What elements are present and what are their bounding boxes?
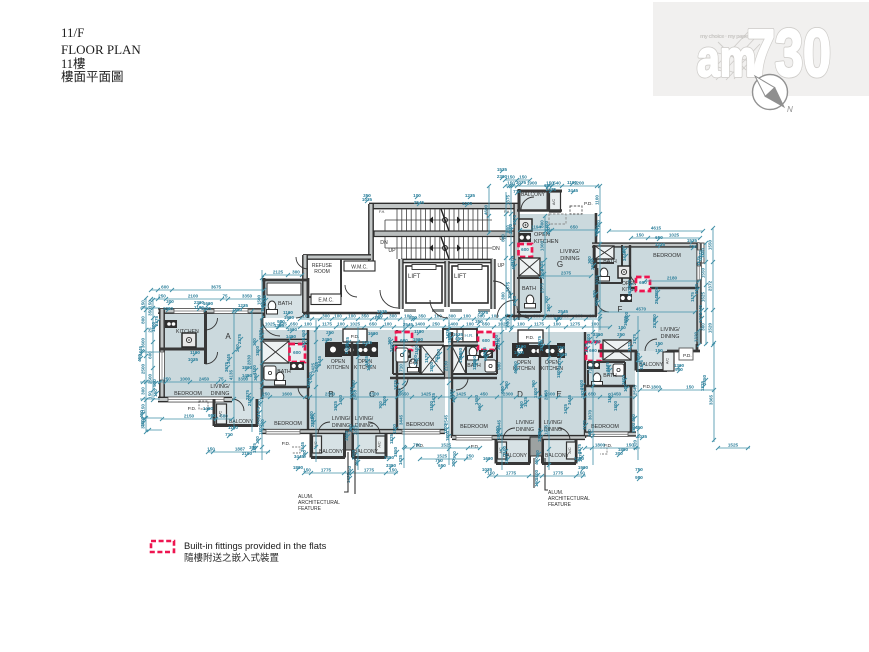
svg-text:4600: 4600: [483, 204, 488, 215]
svg-text:2450: 2450: [199, 376, 210, 381]
svg-text:A/C: A/C: [666, 358, 670, 365]
svg-text:3075: 3075: [594, 274, 599, 285]
svg-text:1175: 1175: [534, 321, 544, 326]
svg-text:100: 100: [302, 313, 310, 318]
svg-text:LIVING/: LIVING/: [516, 420, 535, 426]
svg-text:3365: 3365: [708, 394, 713, 405]
svg-text:600: 600: [161, 284, 169, 289]
svg-text:300: 300: [322, 313, 330, 318]
svg-text:BEDROOM: BEDROOM: [274, 421, 302, 427]
svg-text:2125: 2125: [273, 269, 284, 274]
svg-text:BATH: BATH: [522, 286, 536, 292]
svg-text:A/C: A/C: [552, 199, 556, 206]
svg-text:2300: 2300: [369, 391, 380, 396]
svg-text:150: 150: [686, 384, 694, 389]
svg-text:600: 600: [293, 350, 301, 355]
svg-text:300: 300: [389, 313, 397, 318]
svg-text:FEATURE: FEATURE: [298, 506, 322, 512]
svg-text:2375: 2375: [539, 282, 544, 293]
svg-text:KITCHEN: KITCHEN: [327, 365, 349, 371]
svg-text:1175: 1175: [322, 321, 332, 326]
svg-text:1600: 1600: [282, 391, 293, 396]
svg-text:N: N: [787, 105, 793, 114]
svg-text:LIFT: LIFT: [454, 274, 467, 280]
svg-text:100: 100: [334, 313, 342, 318]
svg-text:250: 250: [432, 321, 440, 326]
svg-text:1225: 1225: [352, 424, 357, 435]
svg-text:DINING: DINING: [661, 334, 680, 340]
svg-text:1000: 1000: [180, 376, 191, 381]
svg-text:980: 980: [496, 362, 501, 370]
svg-text:BATH: BATH: [278, 301, 292, 307]
svg-text:ROOM: ROOM: [314, 269, 330, 275]
svg-text:100: 100: [304, 321, 312, 326]
svg-text:1800: 1800: [595, 442, 606, 447]
svg-text:100: 100: [591, 321, 599, 326]
svg-text:1520: 1520: [707, 322, 712, 333]
svg-text:75: 75: [218, 376, 224, 381]
svg-text:1275: 1275: [570, 321, 581, 326]
svg-text:BEDROOM: BEDROOM: [406, 422, 434, 428]
svg-text:2100: 2100: [188, 293, 199, 298]
svg-text:450: 450: [480, 391, 488, 396]
svg-text:11樓: 11樓: [61, 56, 86, 71]
svg-text:1800: 1800: [651, 384, 662, 389]
svg-text:BEDROOM: BEDROOM: [591, 424, 619, 430]
svg-text:E.M.C.: E.M.C.: [318, 298, 333, 304]
svg-text:A/C: A/C: [378, 441, 382, 448]
svg-text:2372: 2372: [707, 280, 712, 291]
svg-text:3350: 3350: [242, 293, 253, 298]
svg-text:1450: 1450: [611, 391, 622, 396]
svg-text:2830: 2830: [246, 354, 251, 365]
svg-text:2500: 2500: [140, 363, 145, 374]
svg-text:1100: 1100: [594, 195, 599, 205]
svg-text:1550: 1550: [707, 239, 712, 250]
svg-text:BEDROOM: BEDROOM: [653, 253, 681, 259]
svg-text:2180: 2180: [667, 275, 678, 280]
svg-text:350: 350: [361, 313, 369, 318]
svg-text:250: 250: [158, 293, 166, 298]
svg-text:1225: 1225: [543, 424, 548, 435]
svg-text:800: 800: [140, 316, 145, 324]
svg-text:H.R.: H.R.: [465, 333, 474, 338]
svg-text:FLOOR PLAN: FLOOR PLAN: [61, 42, 141, 57]
svg-text:樓面平面圖: 樓面平面圖: [61, 69, 124, 84]
svg-text:2545: 2545: [632, 384, 637, 395]
svg-text:4135: 4135: [228, 369, 233, 380]
svg-text:1775: 1775: [553, 470, 564, 475]
svg-text:1425: 1425: [456, 391, 467, 396]
svg-text:100: 100: [466, 321, 474, 326]
svg-text:350: 350: [147, 308, 152, 316]
svg-text:3670: 3670: [587, 409, 592, 420]
svg-text:1525: 1525: [441, 442, 452, 447]
svg-text:LIVING/: LIVING/: [560, 249, 580, 255]
svg-text:1525: 1525: [728, 442, 739, 447]
svg-text:BATH: BATH: [277, 369, 291, 375]
svg-text:580: 580: [220, 413, 228, 418]
svg-text:1300: 1300: [539, 240, 544, 251]
svg-text:3445: 3445: [398, 414, 403, 425]
svg-text:UP: UP: [498, 263, 506, 269]
svg-text:300: 300: [448, 313, 456, 318]
svg-text:250: 250: [466, 453, 474, 458]
svg-text:100: 100: [337, 321, 345, 326]
svg-text:800: 800: [500, 234, 505, 242]
svg-text:1320: 1320: [632, 439, 637, 450]
svg-text:2458: 2458: [543, 389, 548, 400]
svg-text:600: 600: [589, 348, 597, 353]
svg-text:DN: DN: [380, 240, 388, 246]
svg-text:650: 650: [588, 391, 596, 396]
svg-text:100: 100: [384, 321, 392, 326]
svg-text:300: 300: [292, 269, 300, 274]
svg-text:1775: 1775: [506, 470, 517, 475]
svg-text:600: 600: [639, 280, 647, 285]
svg-text:3675: 3675: [211, 284, 222, 289]
svg-text:KITCHEN: KITCHEN: [176, 329, 199, 335]
svg-text:650: 650: [482, 321, 490, 326]
svg-text:250: 250: [262, 391, 270, 396]
svg-text:11/F: 11/F: [61, 25, 84, 40]
svg-text:600: 600: [521, 247, 529, 252]
svg-text:DN: DN: [492, 246, 500, 252]
svg-text:650: 650: [401, 391, 409, 396]
svg-text:250: 250: [163, 376, 171, 381]
svg-text:2300: 2300: [325, 391, 336, 396]
svg-text:F.H.: F.H.: [379, 210, 385, 214]
svg-text:300: 300: [500, 292, 505, 300]
svg-text:LIFT: LIFT: [408, 274, 421, 280]
svg-text:BEDROOM: BEDROOM: [460, 424, 488, 430]
svg-text:150: 150: [507, 174, 515, 179]
svg-text:650: 650: [570, 224, 578, 229]
svg-text:540: 540: [553, 180, 561, 185]
svg-text:2130: 2130: [443, 360, 448, 371]
svg-text:600: 600: [482, 338, 490, 343]
svg-text:W.M.C.: W.M.C.: [351, 265, 367, 271]
svg-text:100: 100: [491, 313, 499, 318]
svg-text:1625: 1625: [700, 291, 705, 302]
svg-text:LIVING/: LIVING/: [210, 384, 230, 390]
svg-text:600: 600: [400, 338, 408, 343]
svg-text:1025: 1025: [669, 232, 680, 237]
svg-text:100: 100: [463, 313, 471, 318]
svg-text:BATH: BATH: [603, 259, 617, 265]
svg-text:1550: 1550: [700, 267, 705, 278]
svg-text:P.D.: P.D.: [282, 441, 291, 447]
svg-text:150: 150: [147, 300, 152, 308]
svg-text:650: 650: [369, 321, 377, 326]
svg-text:2375: 2375: [561, 270, 572, 275]
svg-text:P.D.: P.D.: [526, 335, 535, 341]
svg-text:BALCONY: BALCONY: [319, 449, 344, 455]
svg-text:LIVING/: LIVING/: [660, 327, 680, 333]
svg-text:150: 150: [507, 180, 515, 185]
svg-text:300: 300: [140, 387, 145, 395]
svg-text:100: 100: [517, 321, 525, 326]
svg-text:G: G: [557, 260, 563, 269]
svg-text:150: 150: [303, 467, 311, 472]
svg-text:1400: 1400: [415, 321, 426, 326]
svg-text:4570: 4570: [636, 306, 647, 311]
svg-text:A: A: [225, 332, 231, 341]
svg-text:100: 100: [348, 313, 356, 318]
svg-text:隨樓附送之嵌入式裝置: 隨樓附送之嵌入式裝置: [184, 552, 279, 564]
svg-text:BEDROOM: BEDROOM: [174, 391, 202, 397]
svg-text:F: F: [618, 305, 623, 314]
svg-text:UP: UP: [388, 248, 396, 254]
svg-text:1400: 1400: [448, 321, 459, 326]
svg-text:150: 150: [147, 391, 152, 399]
svg-text:LIVING/: LIVING/: [332, 416, 351, 422]
svg-text:P.D.: P.D.: [584, 201, 593, 207]
svg-text:750: 750: [413, 442, 421, 447]
svg-text:1775: 1775: [364, 467, 375, 472]
svg-text:DINING: DINING: [211, 391, 230, 397]
svg-text:650: 650: [290, 321, 298, 326]
svg-text:350: 350: [418, 313, 426, 318]
svg-text:2545: 2545: [443, 414, 448, 425]
svg-text:75: 75: [222, 293, 228, 298]
svg-text:DINING: DINING: [560, 256, 580, 262]
svg-text:Built-in fittings provided in: Built-in fittings provided in the flats: [184, 540, 327, 551]
svg-text:1025: 1025: [350, 321, 361, 326]
svg-text:4615: 4615: [651, 225, 662, 230]
svg-text:P.D.: P.D.: [683, 353, 692, 359]
svg-text:DINING: DINING: [516, 427, 534, 433]
svg-text:710: 710: [398, 364, 403, 372]
svg-text:150: 150: [207, 446, 215, 451]
svg-text:FEATURE: FEATURE: [548, 502, 572, 508]
svg-text:1775: 1775: [321, 467, 332, 472]
svg-text:P.D.: P.D.: [471, 444, 480, 450]
svg-text:2150: 2150: [184, 413, 195, 418]
svg-text:100: 100: [434, 313, 442, 318]
svg-text:100: 100: [553, 321, 561, 326]
svg-text:710: 710: [587, 366, 592, 374]
svg-text:150: 150: [636, 232, 644, 237]
svg-text:1425: 1425: [421, 391, 432, 396]
svg-text:P.D.: P.D.: [188, 406, 197, 412]
svg-text:KITCHEN: KITCHEN: [534, 239, 559, 245]
svg-text:1320: 1320: [693, 331, 698, 342]
svg-text:150: 150: [519, 174, 527, 179]
